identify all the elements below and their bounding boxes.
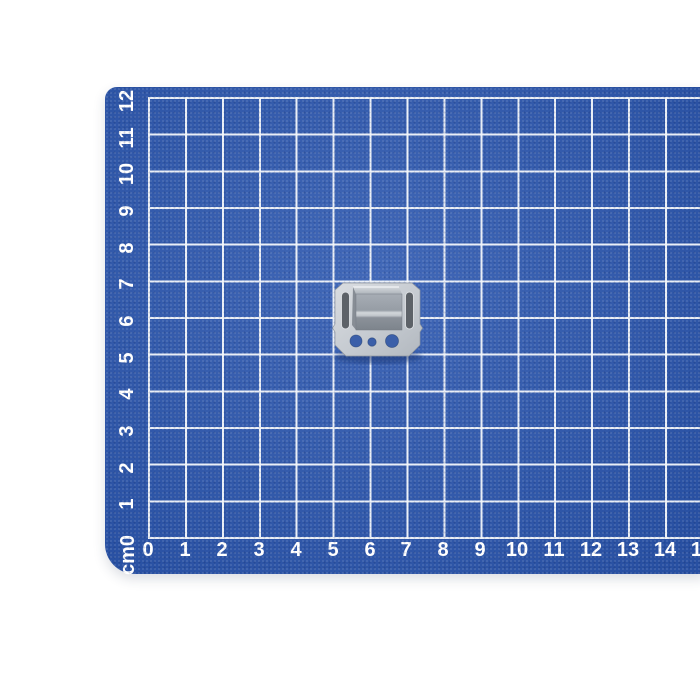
- product-photo: 0 1 2 3 4 5 6 7 8 9 10 11 12 13 14 15 1 …: [0, 0, 700, 700]
- corner-unit-label: cm0: [118, 535, 138, 575]
- x-axis-label: 14: [654, 540, 676, 560]
- clip-right-slot: [406, 292, 414, 329]
- y-axis-label: 8: [117, 242, 137, 253]
- y-axis-label: 10: [117, 163, 137, 185]
- y-axis-label: 5: [117, 352, 137, 363]
- x-axis-label: 9: [474, 540, 485, 560]
- clip-raised-box: [352, 287, 402, 330]
- x-axis-label: 10: [506, 540, 528, 560]
- clip-left-slot: [342, 292, 350, 329]
- x-axis-label: 6: [364, 540, 375, 560]
- x-axis-label: 1: [179, 540, 190, 560]
- clip-hole-right: [386, 335, 399, 348]
- y-axis-label: 9: [117, 205, 137, 216]
- x-axis-label: 4: [290, 540, 301, 560]
- y-axis-label: 3: [117, 425, 137, 436]
- clip-hole-center: [368, 338, 376, 346]
- x-axis-label: 15: [691, 540, 700, 560]
- clip-box-front-face: [356, 294, 402, 330]
- x-axis-label: 11: [543, 540, 564, 560]
- clip-box-top-face: [353, 287, 402, 294]
- y-axis-label: 2: [117, 462, 137, 473]
- x-axis-label: 7: [400, 540, 411, 560]
- x-axis-label: 8: [437, 540, 448, 560]
- x-axis-label: 12: [580, 540, 602, 560]
- y-axis-label: 11: [117, 127, 137, 148]
- grid-lines: [148, 97, 700, 539]
- y-axis-label: 1: [117, 498, 137, 509]
- y-axis-label: 4: [117, 388, 137, 399]
- x-axis-label: 13: [617, 540, 639, 560]
- y-axis-label: 6: [117, 315, 137, 326]
- y-axis-label: 12: [117, 90, 137, 112]
- clip-hole-left: [350, 335, 362, 347]
- metal-clip: [332, 279, 424, 365]
- y-axis-label: 7: [117, 278, 137, 289]
- x-axis-label: 2: [216, 540, 227, 560]
- x-axis-label: 0: [142, 540, 153, 560]
- x-axis-label: 3: [253, 540, 264, 560]
- x-axis-label: 5: [327, 540, 338, 560]
